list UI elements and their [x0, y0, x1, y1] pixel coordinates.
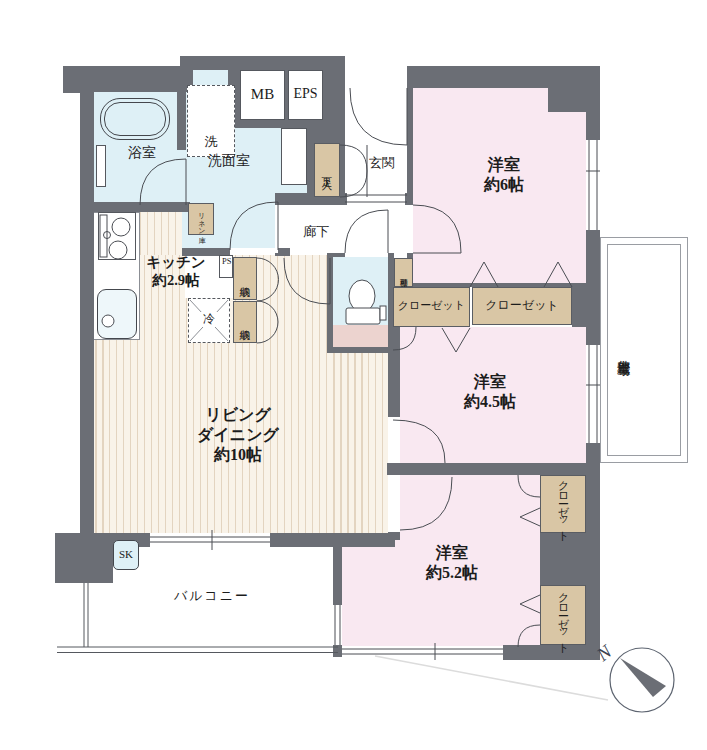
washroom-label: 洗面室 — [199, 152, 259, 170]
wall-toilet-left — [327, 253, 333, 353]
wall-corridor-bottom-a — [275, 253, 284, 256]
bathtub — [100, 98, 170, 140]
shoe-cabinet-label: 下足入 — [315, 145, 339, 195]
bath-counter — [96, 145, 106, 187]
living-label-2: ダイニング — [173, 425, 303, 445]
compass-icon: N — [592, 640, 674, 712]
bedroom6-label: 洋室 約6帖 — [444, 155, 564, 195]
wall-right-mid — [586, 230, 600, 287]
wall-shoe-top — [314, 127, 340, 143]
kitchen-size: 約2.9帖 — [116, 271, 236, 289]
wall-bottom-left-chunk — [55, 533, 113, 583]
window-bedroom52-bottom — [342, 646, 503, 656]
kitchen-sink — [97, 289, 137, 339]
bedroom52-size: 約5.2帖 — [392, 563, 512, 583]
living-label-1: リビング — [173, 405, 303, 425]
bedroom52-floor-upper — [400, 475, 540, 545]
living-dining-label: リビング ダイニング 約10帖 — [173, 405, 303, 465]
living-dining-floor-east — [333, 353, 388, 535]
bedroom52-name: 洋室 — [392, 543, 512, 563]
kitchen-label: キッチン 約2.9帖 — [116, 253, 236, 289]
vanity-unit — [281, 128, 307, 185]
closet-a-label: クローゼット — [393, 299, 470, 313]
bedroom6-size: 約6帖 — [444, 175, 564, 195]
corridor-label: 廊下 — [290, 224, 342, 240]
window-bedroom45 — [586, 345, 600, 443]
bedroom6-name: 洋室 — [444, 155, 564, 175]
bathroom-label: 浴室 — [112, 144, 172, 162]
bedroom45-label: 洋室 約4.5帖 — [430, 372, 550, 412]
window-bedroom6 — [586, 140, 600, 230]
entrance-label: 玄関 — [356, 155, 408, 171]
eps-label: EPS — [288, 85, 323, 103]
wall-bedroom52-bottom — [503, 645, 600, 660]
living-label-3: 約10帖 — [173, 445, 303, 465]
fridge-label: 冷 — [194, 312, 224, 327]
mb-label: MB — [240, 85, 285, 104]
wall-bedroom6-left-upper — [407, 88, 413, 205]
kitchen-name: キッチン — [116, 253, 236, 271]
wall-right-45-lower — [586, 443, 600, 465]
bathtub-inner — [104, 102, 166, 136]
storage-label-2: 収納 — [234, 303, 256, 341]
wall-toilet-bottom — [327, 347, 394, 353]
bedroom45-size: 約4.5帖 — [430, 392, 550, 412]
floor-plan: N 浴室 洗 洗面室 MB EPS 玄関 下足入 廊下 キッチン 約2.9帖 リ… — [0, 0, 707, 750]
wall-between-52-closets — [540, 533, 600, 585]
wall-bath-bottom — [80, 202, 190, 212]
wall-vanity-column — [307, 127, 314, 197]
closet-52-lower-label: クローゼット — [546, 590, 580, 642]
wall-right-upper — [586, 88, 600, 140]
storage-label-1: 収納 — [234, 259, 256, 298]
closet-b-label: クローゼット — [472, 298, 572, 313]
wall-bedroom52-left-post — [333, 645, 342, 657]
toilet-floor — [333, 257, 388, 325]
wall-right-45-upper — [586, 287, 600, 345]
movable-shelf-label: 可動棚 — [395, 259, 412, 286]
kitchen-floor — [140, 205, 182, 255]
wall-left — [80, 66, 94, 557]
washer-label: 洗 — [196, 134, 226, 150]
wall-bedroom45-left — [388, 327, 400, 417]
wall-top-b — [180, 56, 345, 70]
wall-shoe-entrance — [340, 127, 345, 197]
outdoor-unit-label: 室外機置場 — [610, 296, 636, 406]
slop-sink-label: SK — [113, 548, 139, 562]
closet-52-upper-label: クローゼット — [546, 478, 580, 530]
window-bedroom52-left — [333, 605, 342, 645]
entrance-floor — [345, 88, 407, 195]
window-ld-balcony — [150, 533, 270, 547]
ps-label: PS — [222, 257, 231, 266]
wall-bedroom52-left — [333, 547, 342, 605]
toilet-floor-mat — [333, 325, 388, 347]
bedroom52-label: 洋室 約5.2帖 — [392, 543, 512, 583]
bedroom45-name: 洋室 — [430, 372, 550, 392]
wall-corridor-bottom-b — [330, 253, 345, 256]
balcony-label: バルコニー — [152, 588, 272, 604]
wall-bath-washroom — [177, 70, 186, 150]
wall-top-c — [407, 66, 555, 88]
linen-label: リネン庫 — [190, 204, 212, 234]
